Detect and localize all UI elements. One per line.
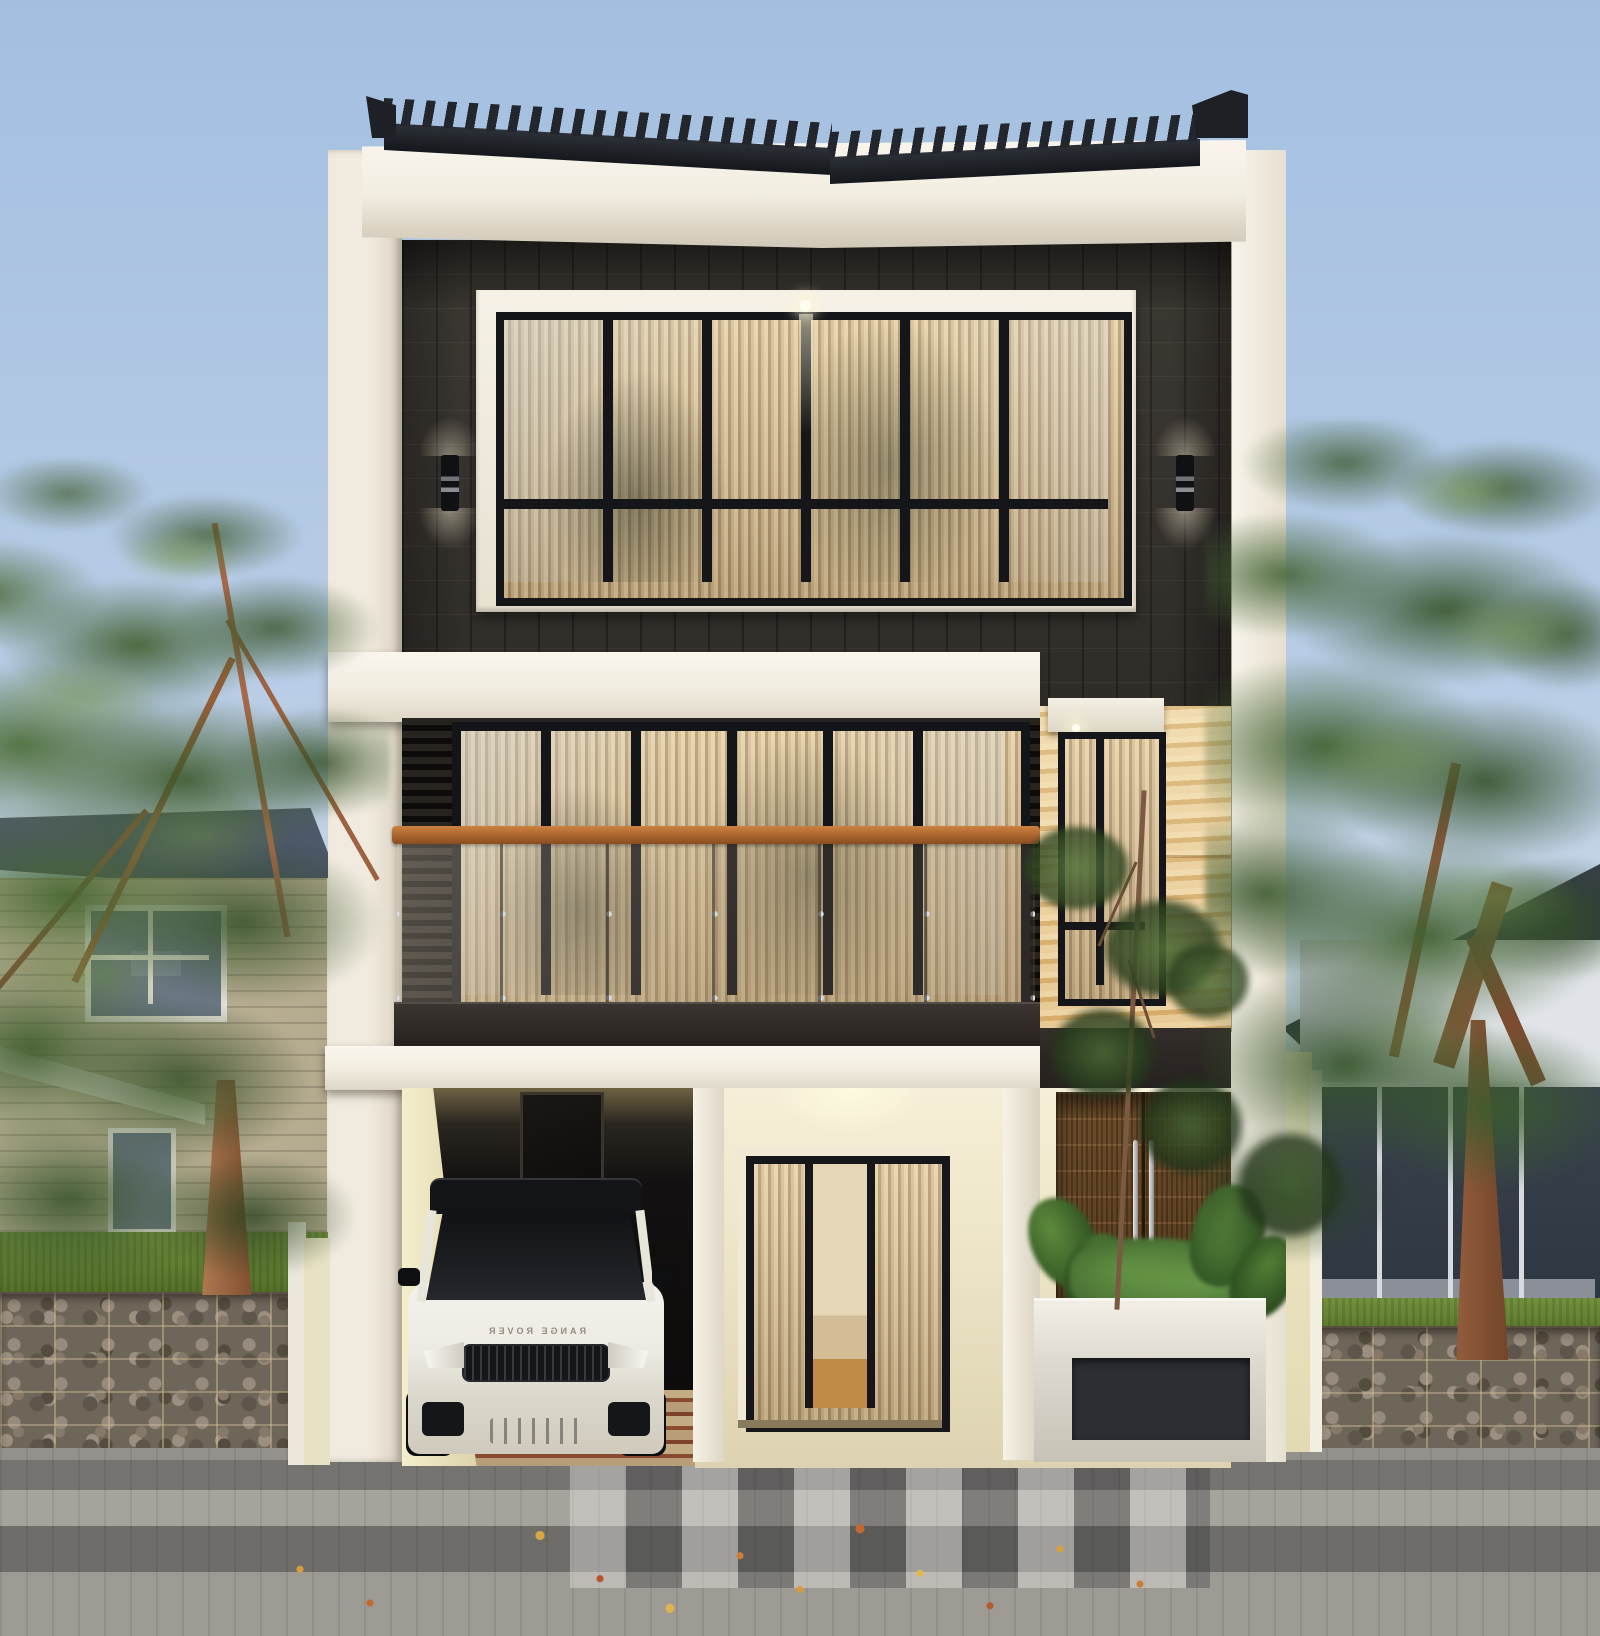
balcony-glass-panels (397, 844, 1035, 1004)
ground-floor-slab (325, 1046, 1040, 1090)
entry-threshold (738, 1420, 942, 1428)
car-hood-badge: RANGE ROVER (456, 1326, 616, 1340)
right-tree-highlights (1260, 450, 1600, 1150)
wall-sconce-right (1176, 455, 1194, 511)
car-fog-recess-left (422, 1402, 464, 1436)
wall-sconce-left (441, 455, 459, 511)
roof-end-cap-right (1192, 90, 1248, 138)
right-tree-low-cluster (1215, 1110, 1365, 1260)
car-fog-recess-right (608, 1402, 650, 1436)
architectural-render-scene: RANGE ROVER (0, 0, 1600, 1636)
planter-recess-panel (1072, 1358, 1250, 1440)
fallen-leaves (240, 1495, 1240, 1630)
car-grille (464, 1346, 608, 1380)
left-tree-highlights (0, 500, 360, 1200)
car-windshield (426, 1208, 646, 1300)
balcony-wood-handrail (392, 826, 1040, 844)
travertine-window-downlight (1072, 724, 1080, 732)
ceiling-downlight (800, 300, 811, 311)
car-mirror-right (652, 1268, 674, 1286)
downlight-streak (799, 314, 813, 434)
entry-door-mullions (754, 1164, 926, 1408)
balcony-parapet (394, 1002, 1040, 1052)
car-mirror-left (398, 1268, 420, 1286)
range-rover-car: RANGE ROVER (398, 1150, 674, 1462)
travertine-window-header (1048, 698, 1164, 732)
mid-floor-slab (328, 652, 1040, 722)
porch-pier-left (693, 1088, 724, 1462)
car-skid-plate (490, 1418, 582, 1444)
car-roof (430, 1178, 642, 1214)
